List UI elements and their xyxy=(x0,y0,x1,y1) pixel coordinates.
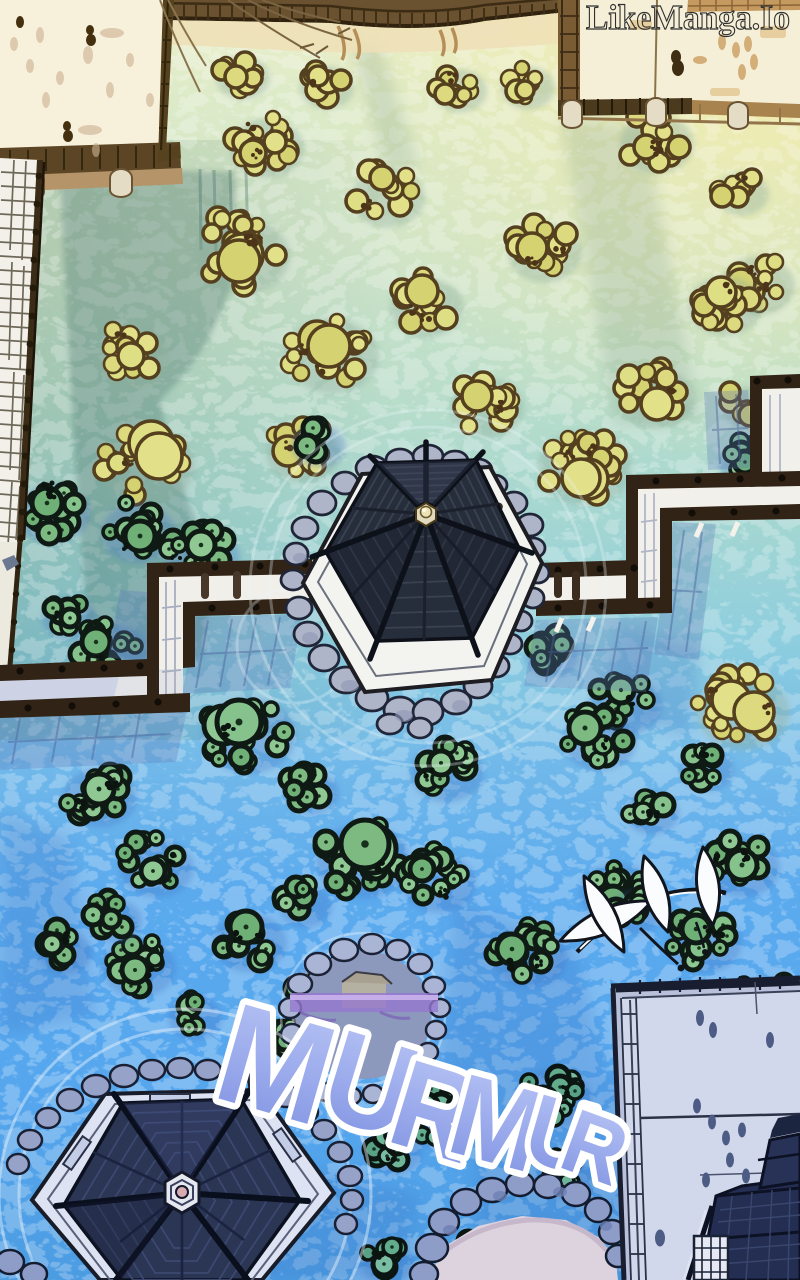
svg-text:LikeManga.Io: LikeManga.Io xyxy=(586,0,790,37)
